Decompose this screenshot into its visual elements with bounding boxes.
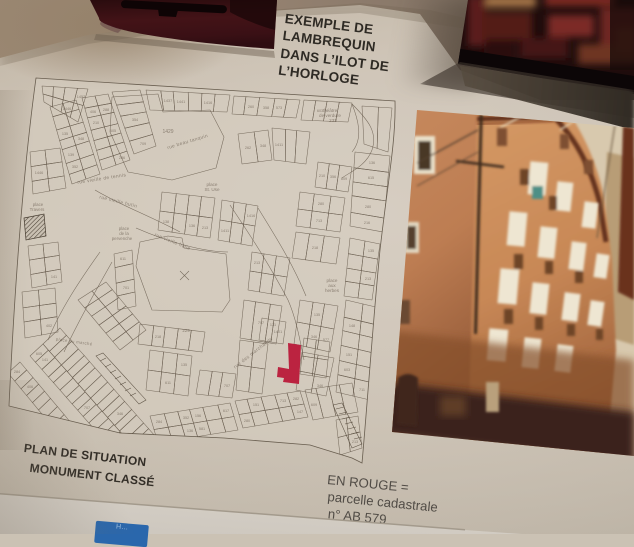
svg-text:135: 135 <box>314 313 320 317</box>
svg-text:280: 280 <box>244 419 250 423</box>
svg-text:286: 286 <box>119 156 125 160</box>
svg-text:141: 141 <box>42 358 48 362</box>
svg-text:147: 147 <box>297 410 303 414</box>
svg-text:280: 280 <box>318 202 324 206</box>
svg-text:609: 609 <box>341 177 347 181</box>
svg-text:1416: 1416 <box>204 101 212 105</box>
svg-text:288: 288 <box>103 108 109 112</box>
svg-text:605: 605 <box>36 352 42 356</box>
svg-text:348: 348 <box>78 137 84 141</box>
svg-text:131: 131 <box>270 323 276 327</box>
svg-text:229: 229 <box>182 328 190 333</box>
svg-text:233: 233 <box>329 118 337 123</box>
svg-text:709: 709 <box>140 142 146 146</box>
svg-text:1452: 1452 <box>77 95 85 99</box>
svg-text:346: 346 <box>311 335 317 339</box>
svg-text:141: 141 <box>51 275 57 279</box>
svg-text:609: 609 <box>311 403 317 407</box>
svg-text:156: 156 <box>195 414 201 418</box>
svg-text:701: 701 <box>123 286 129 290</box>
svg-text:Travers: Travers <box>30 207 46 212</box>
svg-text:St. Use: St. Use <box>204 187 220 192</box>
svg-text:136: 136 <box>187 429 193 433</box>
svg-text:148: 148 <box>349 324 355 328</box>
svg-text:280: 280 <box>365 205 371 209</box>
svg-text:213: 213 <box>202 226 208 230</box>
svg-text:135: 135 <box>62 132 68 136</box>
svg-text:213: 213 <box>254 261 260 265</box>
svg-text:711: 711 <box>359 388 365 392</box>
svg-text:136: 136 <box>189 224 195 228</box>
svg-text:210: 210 <box>93 121 99 125</box>
svg-text:707: 707 <box>224 384 230 388</box>
svg-text:1441: 1441 <box>177 100 185 104</box>
svg-text:1446: 1446 <box>63 107 71 111</box>
svg-text:138: 138 <box>163 220 169 224</box>
svg-text:1437: 1437 <box>164 99 172 103</box>
svg-text:358: 358 <box>263 106 269 110</box>
svg-text:216: 216 <box>364 221 370 225</box>
svg-text:pervenche: pervenche <box>112 236 133 241</box>
svg-text:352: 352 <box>72 165 78 169</box>
svg-text:151: 151 <box>253 403 259 407</box>
svg-text:1446: 1446 <box>35 171 43 175</box>
svg-text:218: 218 <box>312 246 318 250</box>
svg-text:1416: 1416 <box>247 214 255 218</box>
svg-text:136: 136 <box>369 161 375 165</box>
svg-text:611: 611 <box>120 257 126 261</box>
svg-text:herbes: herbes <box>325 288 340 293</box>
svg-text:210: 210 <box>319 174 325 178</box>
svg-text:218: 218 <box>155 335 161 339</box>
svg-text:213: 213 <box>365 277 371 281</box>
svg-text:1411: 1411 <box>275 143 283 147</box>
svg-text:605: 605 <box>110 129 116 133</box>
svg-text:615: 615 <box>368 176 374 180</box>
svg-text:617: 617 <box>223 409 229 413</box>
svg-text:354: 354 <box>132 118 138 122</box>
svg-text:282: 282 <box>293 397 299 401</box>
svg-text:1411: 1411 <box>221 229 229 233</box>
svg-text:346: 346 <box>317 384 323 388</box>
svg-text:260: 260 <box>248 105 254 109</box>
svg-text:713: 713 <box>316 219 322 223</box>
svg-text:135: 135 <box>181 363 187 367</box>
svg-text:262: 262 <box>245 146 251 150</box>
svg-text:356: 356 <box>330 175 336 179</box>
svg-text:707: 707 <box>258 321 264 325</box>
svg-text:151: 151 <box>346 353 352 357</box>
svg-text:573: 573 <box>276 106 282 110</box>
svg-text:1401: 1401 <box>274 330 282 334</box>
svg-text:213: 213 <box>352 440 358 444</box>
svg-text:581: 581 <box>199 427 205 431</box>
svg-text:284: 284 <box>14 370 20 374</box>
svg-text:352: 352 <box>183 416 189 420</box>
svg-text:139: 139 <box>68 153 74 157</box>
svg-text:577: 577 <box>323 338 329 342</box>
svg-text:406: 406 <box>90 110 96 114</box>
svg-text:135: 135 <box>368 249 374 253</box>
svg-text:713: 713 <box>280 399 286 403</box>
svg-text:348: 348 <box>260 144 266 148</box>
svg-text:603: 603 <box>344 368 350 372</box>
svg-text:402: 402 <box>46 324 52 328</box>
svg-text:1429: 1429 <box>162 129 173 135</box>
